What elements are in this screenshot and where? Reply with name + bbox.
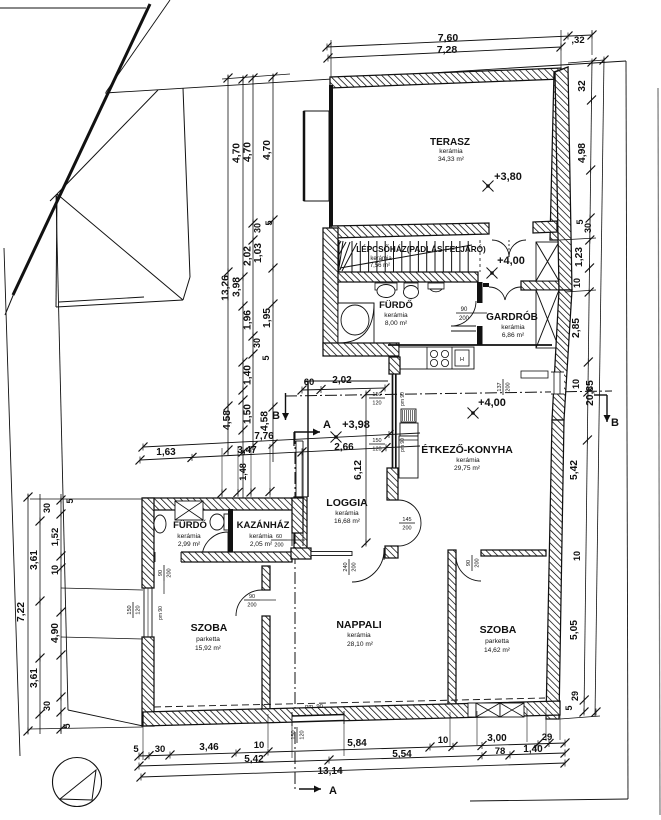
svg-text:29,75 m²: 29,75 m² <box>454 465 481 472</box>
svg-text:2,99 m²: 2,99 m² <box>178 541 201 548</box>
svg-text:200: 200 <box>167 568 173 577</box>
svg-text:1,23: 1,23 <box>574 247 585 267</box>
svg-text:SZOBA: SZOBA <box>191 622 228 634</box>
svg-text:5: 5 <box>575 219 585 224</box>
svg-text:60: 60 <box>304 377 315 388</box>
svg-text:200: 200 <box>352 562 358 571</box>
svg-text:90: 90 <box>461 307 468 313</box>
svg-text:kerámia: kerámia <box>384 312 408 319</box>
svg-text:137: 137 <box>497 382 503 391</box>
svg-text:10: 10 <box>50 565 60 575</box>
svg-text:145: 145 <box>402 517 411 523</box>
svg-text:5,42: 5,42 <box>569 460 580 480</box>
svg-text:5,54: 5,54 <box>392 749 412 760</box>
svg-text:1,40: 1,40 <box>243 365 254 385</box>
svg-text:5,42: 5,42 <box>244 754 264 765</box>
svg-text:pm 90: pm 90 <box>158 606 164 620</box>
svg-text:13,14: 13,14 <box>317 766 342 777</box>
svg-text:30: 30 <box>42 503 52 513</box>
svg-text:parketta: parketta <box>196 636 220 643</box>
svg-text:10: 10 <box>254 740 265 751</box>
svg-text:6,12: 6,12 <box>353 460 364 480</box>
svg-text:KAZÁNHÁZ: KAZÁNHÁZ <box>237 520 290 531</box>
svg-text:6,86 m²: 6,86 m² <box>502 332 525 339</box>
svg-text:150: 150 <box>127 605 133 614</box>
svg-text:kerámia: kerámia <box>501 324 525 331</box>
svg-text:3,61: 3,61 <box>29 668 40 688</box>
svg-text:4,98: 4,98 <box>577 143 588 163</box>
svg-text:3,00: 3,00 <box>487 733 507 744</box>
svg-text:1,50: 1,50 <box>243 404 254 424</box>
svg-text:200: 200 <box>506 382 512 391</box>
svg-text:GARDRÓB: GARDRÓB <box>486 310 538 323</box>
svg-text:1,40: 1,40 <box>523 744 543 755</box>
svg-text:5: 5 <box>264 220 274 225</box>
svg-text:20,85: 20,85 <box>585 380 596 406</box>
svg-text:4,58: 4,58 <box>260 411 271 431</box>
svg-text:200: 200 <box>459 316 470 322</box>
svg-text:TERASZ: TERASZ <box>430 137 470 148</box>
svg-text:7,28: 7,28 <box>437 44 458 56</box>
svg-text:29: 29 <box>542 732 553 743</box>
svg-text:1,63: 1,63 <box>156 447 176 458</box>
svg-text:120: 120 <box>372 447 381 453</box>
svg-text:200: 200 <box>475 558 481 567</box>
svg-text:30: 30 <box>42 701 52 711</box>
svg-text:120: 120 <box>136 605 142 614</box>
svg-text:7,56 m²: 7,56 m² <box>370 263 390 269</box>
svg-text:90: 90 <box>249 594 255 600</box>
svg-text:8,00 m²: 8,00 m² <box>385 320 408 327</box>
svg-text:14,62 m²: 14,62 m² <box>484 647 511 654</box>
svg-text:30: 30 <box>155 744 166 755</box>
svg-text:32: 32 <box>577 80 588 92</box>
svg-text:2,05 m²: 2,05 m² <box>250 541 273 548</box>
svg-text:60: 60 <box>276 534 282 540</box>
svg-text:28,10 m²: 28,10 m² <box>347 641 374 648</box>
svg-text:+4,00: +4,00 <box>497 255 525 267</box>
svg-text:H: H <box>460 357 464 363</box>
svg-text:90: 90 <box>158 570 164 576</box>
svg-text:FÜRDŐ: FÜRDŐ <box>379 299 413 311</box>
svg-text:200: 200 <box>402 526 411 532</box>
svg-text:kerámia: kerámia <box>456 457 480 464</box>
svg-text:1,96: 1,96 <box>243 310 254 330</box>
svg-text:2,85: 2,85 <box>571 318 582 338</box>
svg-text:30: 30 <box>252 338 262 348</box>
svg-text:parketta: parketta <box>485 638 509 645</box>
svg-text:kerámia: kerámia <box>347 632 371 639</box>
svg-text:1,95: 1,95 <box>262 308 273 328</box>
svg-text:3,46: 3,46 <box>199 742 219 753</box>
svg-text:A: A <box>323 419 331 431</box>
svg-text:SZOBA: SZOBA <box>480 624 517 636</box>
svg-text:7,60: 7,60 <box>438 32 459 44</box>
svg-text:A: A <box>329 785 337 797</box>
svg-text:NAPPALI: NAPPALI <box>336 619 381 631</box>
svg-text:240: 240 <box>343 562 349 571</box>
svg-text:120: 120 <box>300 730 306 739</box>
svg-text:kerámia: kerámia <box>335 510 359 517</box>
svg-text:13,26: 13,26 <box>221 275 232 301</box>
svg-text:2,02: 2,02 <box>243 246 254 266</box>
svg-text:30: 30 <box>253 223 263 233</box>
svg-text:5,84: 5,84 <box>347 738 367 749</box>
svg-text:kerámia: kerámia <box>177 533 201 540</box>
svg-text:4,70: 4,70 <box>243 142 254 162</box>
svg-text:10: 10 <box>438 735 449 746</box>
svg-text:2,66: 2,66 <box>334 442 354 453</box>
svg-text:4,70: 4,70 <box>262 140 273 160</box>
svg-text:1,52: 1,52 <box>50 528 61 547</box>
svg-text:+3,80: +3,80 <box>494 171 522 183</box>
svg-text:34,33 m²: 34,33 m² <box>438 156 465 163</box>
svg-text:150: 150 <box>372 438 381 444</box>
svg-text:ÉTKEZŐ-KONYHA: ÉTKEZŐ-KONYHA <box>421 443 513 456</box>
svg-text:200: 200 <box>274 543 283 549</box>
svg-text:90: 90 <box>466 560 472 566</box>
svg-text:200: 200 <box>247 603 256 609</box>
svg-text:kerámia: kerámia <box>370 256 392 262</box>
svg-text:10: 10 <box>572 278 582 288</box>
svg-text:B: B <box>611 417 619 429</box>
svg-text:16,68 m²: 16,68 m² <box>334 518 361 525</box>
svg-text:3,47: 3,47 <box>237 445 257 456</box>
svg-text:,32: ,32 <box>571 35 584 46</box>
svg-text:2,02: 2,02 <box>332 375 352 386</box>
svg-text:5: 5 <box>261 355 271 360</box>
svg-text:7,22: 7,22 <box>16 602 27 622</box>
svg-text:4,58: 4,58 <box>222 410 233 430</box>
svg-text:kerámia: kerámia <box>249 533 273 540</box>
svg-text:1,03: 1,03 <box>253 243 264 263</box>
svg-text:120: 120 <box>372 401 381 407</box>
svg-text:3,98: 3,98 <box>232 277 243 297</box>
svg-text:5: 5 <box>133 744 139 755</box>
svg-text:5,05: 5,05 <box>569 620 580 640</box>
svg-text:15,92 m²: 15,92 m² <box>195 645 222 652</box>
svg-text:78: 78 <box>495 746 506 757</box>
svg-text:5: 5 <box>564 705 574 710</box>
svg-text:LOGGIA: LOGGIA <box>326 497 368 509</box>
svg-text:kerámia: kerámia <box>439 148 463 155</box>
svg-text:10: 10 <box>571 379 581 389</box>
svg-text:pm. 90: pm. 90 <box>305 704 323 710</box>
svg-text:FÜRDŐ: FÜRDŐ <box>173 519 207 531</box>
svg-text:+4,00: +4,00 <box>478 397 506 409</box>
svg-text:pm 90: pm 90 <box>400 438 406 452</box>
svg-text:LÉPCSŐHÁZ(PADLÁS FELJÁRÓ): LÉPCSŐHÁZ(PADLÁS FELJÁRÓ) <box>356 243 486 254</box>
svg-text:29: 29 <box>570 691 580 701</box>
svg-text:1,48: 1,48 <box>238 463 248 481</box>
svg-text:4,70: 4,70 <box>232 143 243 163</box>
svg-text:3,61: 3,61 <box>29 550 40 570</box>
svg-text:4,90: 4,90 <box>50 623 61 643</box>
svg-text:10: 10 <box>572 551 582 561</box>
svg-text:5: 5 <box>62 723 72 728</box>
